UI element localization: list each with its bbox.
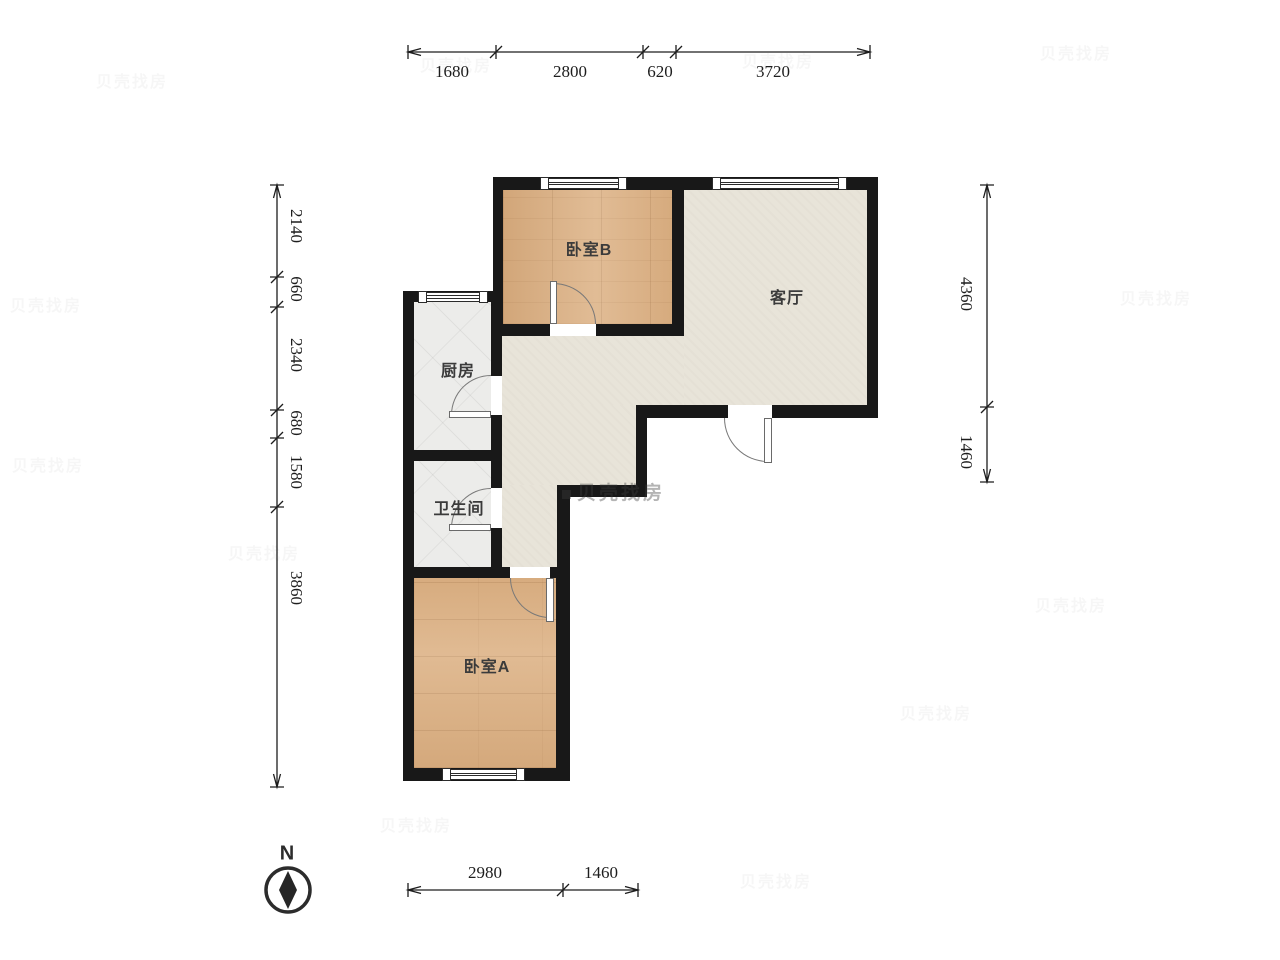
window-end-cap [540,177,549,190]
wall-right [867,190,878,418]
bedroom-a-door-leaf [546,578,554,622]
hallway-floor-mid [502,405,636,485]
kitchen-window [418,292,488,302]
watermark-tile: 贝壳找房 [1120,285,1192,309]
room-label-bedroom-a: 卧室A [464,653,511,677]
wall-living-bottom-right [772,405,878,418]
window-end-cap [516,768,525,781]
dim-label: 1580 [286,455,306,489]
dim-label: 2140 [286,209,306,243]
bedroom-b-door-leaf [550,281,557,324]
watermark-center: 贝壳找房 [562,478,665,505]
window-end-cap [712,177,721,190]
wall-bedroom-a-right [556,578,570,781]
compass-icon [266,868,310,912]
dim-line-right [980,185,994,482]
watermark-tile: 贝壳找房 [740,868,812,892]
balcony-door-arc [724,418,768,462]
living-room-window [712,178,847,189]
window-end-cap [442,768,451,781]
kitchen-door-leaf [449,411,491,418]
watermark-tile: 贝壳找房 [1035,592,1107,616]
dim-ticks-bottom [557,883,569,897]
dim-label: 3720 [756,62,790,82]
watermark-tile: 贝壳找房 [12,452,84,476]
dim-label: 1460 [584,863,618,883]
hallway-floor-upper [502,336,684,405]
window-end-cap [418,291,427,303]
wall-bedroom-a-top-right [550,567,570,578]
dim-label: 3860 [286,571,306,605]
wall-kitchen-bath-divider [414,450,502,461]
wall-bedroom-a-top-left [403,567,510,578]
room-label-bathroom: 卫生间 [433,495,484,519]
dim-line-left [270,185,284,787]
compass-north-label: N [280,843,294,866]
watermark-logo-dot [562,490,571,499]
dim-arrow [408,887,638,894]
dim-label: 2800 [553,62,587,82]
window-end-cap [618,177,627,190]
room-label-living-room: 客厅 [770,284,804,308]
wall-bedroom-b-bottom-right [596,324,684,336]
dim-label: 4360 [956,277,976,311]
balcony-door-leaf [764,418,772,463]
dim-arrow [274,185,281,787]
watermark-tile: 贝壳找房 [380,812,452,836]
watermark-tile: 贝壳找房 [96,68,168,92]
dim-label: 1460 [956,435,976,469]
dim-label: 620 [647,62,673,82]
bedroom-a-window [442,769,525,780]
dim-label: 680 [286,410,306,436]
hallway-floor-lower [502,485,557,567]
dim-ticks-top [490,45,682,59]
room-label-bedroom-b: 卧室B [566,236,613,260]
watermark-tile: 贝壳找房 [10,292,82,316]
bathroom-door-leaf [449,524,491,531]
dim-ticks-left [270,271,284,513]
dim-label: 2980 [468,863,502,883]
room-label-kitchen: 厨房 [441,357,475,381]
dim-ticks-right [980,401,994,413]
dim-label: 1680 [435,62,469,82]
window-end-cap [479,291,488,303]
watermark-tile: 贝壳找房 [228,540,300,564]
wall-bedroom-b-right [672,190,684,336]
dim-label: 2340 [286,338,306,372]
floor-plan: 贝壳找房 贝壳找房 贝壳找房 贝壳找房 贝壳找房 贝壳找房 贝壳找房 贝壳找房 … [0,0,1280,960]
window-end-cap [838,177,847,190]
dim-label: 660 [286,276,306,302]
watermark-tile: 贝壳找房 [1040,40,1112,64]
wall-living-bottom-left [636,405,728,418]
wall-hall-upper [491,302,502,376]
bedroom-b-window [540,178,627,189]
dim-arrow [984,185,991,482]
wall-left-outer [403,291,414,781]
watermark-tile: 贝壳找房 [900,700,972,724]
dim-line-bottom [408,883,638,897]
